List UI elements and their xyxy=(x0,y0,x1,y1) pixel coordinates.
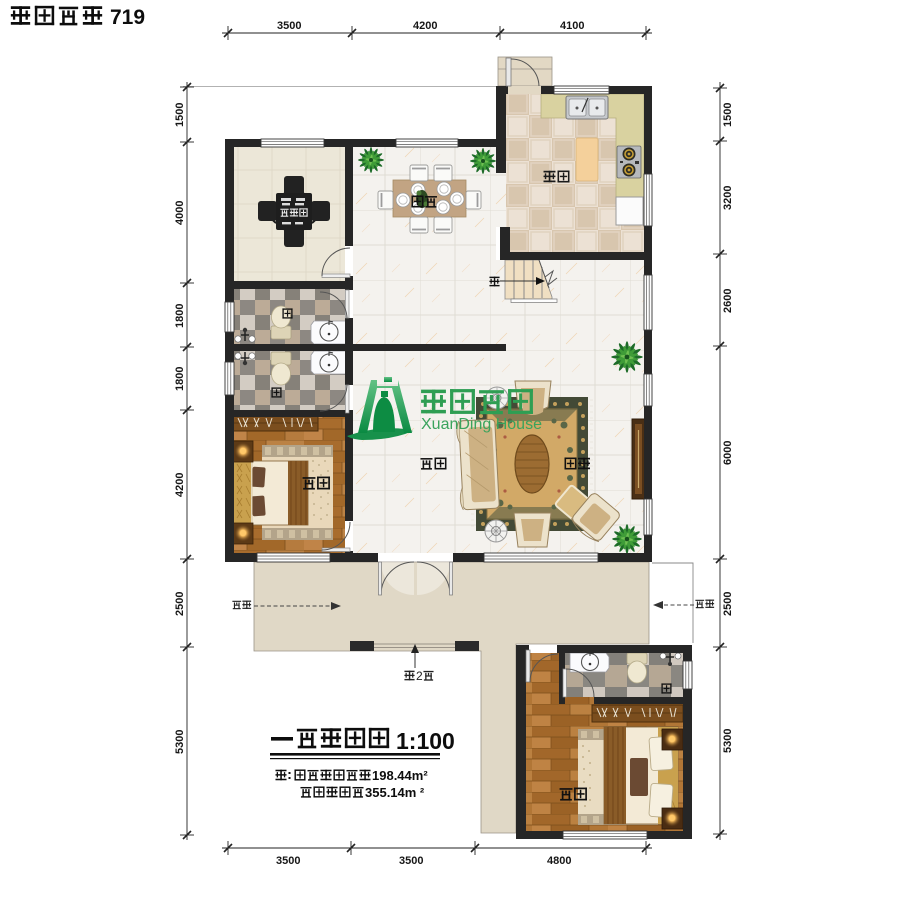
svg-text:5300: 5300 xyxy=(722,729,734,753)
svg-text:719: 719 xyxy=(110,6,145,29)
svg-text:4800: 4800 xyxy=(547,855,571,867)
svg-text:355.14m ²: 355.14m ² xyxy=(365,785,425,800)
svg-text:198.44m²: 198.44m² xyxy=(372,768,428,783)
svg-text:4000: 4000 xyxy=(174,201,186,225)
svg-text:1500: 1500 xyxy=(174,103,186,127)
svg-text:2500: 2500 xyxy=(722,592,734,616)
svg-text:4100: 4100 xyxy=(560,20,584,32)
svg-text:3500: 3500 xyxy=(399,855,423,867)
svg-text:1:100: 1:100 xyxy=(396,728,455,754)
svg-text:3500: 3500 xyxy=(277,20,301,32)
svg-text:1500: 1500 xyxy=(722,103,734,127)
svg-text:2: 2 xyxy=(416,669,423,683)
svg-text:1800: 1800 xyxy=(174,367,186,391)
svg-text:6000: 6000 xyxy=(722,441,734,465)
svg-text:XuanDing House: XuanDing House xyxy=(421,416,542,433)
svg-text:3500: 3500 xyxy=(276,855,300,867)
svg-text:2500: 2500 xyxy=(174,592,186,616)
svg-text:3200: 3200 xyxy=(722,186,734,210)
svg-text:2600: 2600 xyxy=(722,289,734,313)
svg-text:4200: 4200 xyxy=(413,20,437,32)
svg-text:5300: 5300 xyxy=(174,730,186,754)
svg-text:1800: 1800 xyxy=(174,304,186,328)
svg-text:4200: 4200 xyxy=(174,473,186,497)
